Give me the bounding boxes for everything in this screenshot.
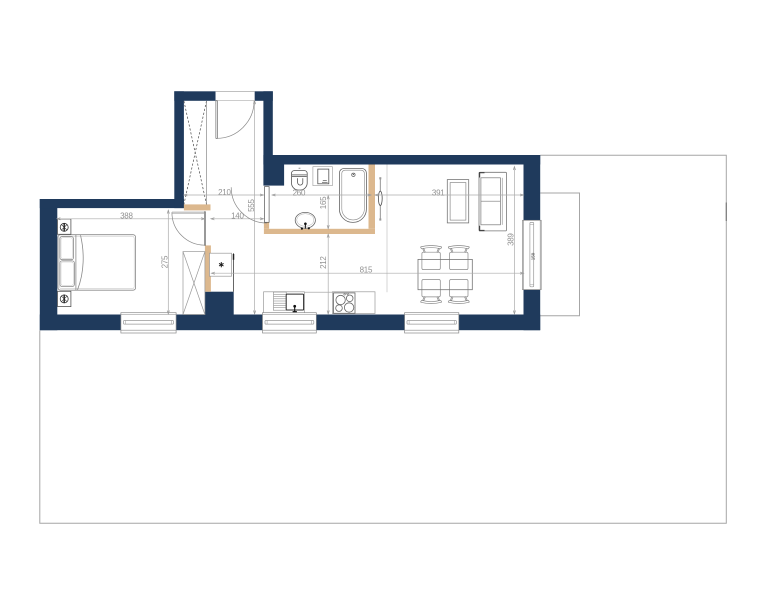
svg-text:165: 165 [319, 196, 328, 209]
svg-text:388: 388 [120, 211, 133, 220]
svg-text:389: 389 [507, 233, 516, 246]
svg-text:260: 260 [293, 188, 306, 197]
svg-text:140: 140 [231, 211, 244, 220]
svg-text:210: 210 [218, 188, 231, 197]
svg-text:150: 150 [531, 252, 536, 260]
svg-text:391: 391 [432, 188, 445, 197]
svg-text:212: 212 [319, 256, 328, 269]
svg-text:555: 555 [247, 199, 256, 212]
svg-text:815: 815 [360, 265, 373, 274]
svg-text:275: 275 [161, 255, 170, 268]
